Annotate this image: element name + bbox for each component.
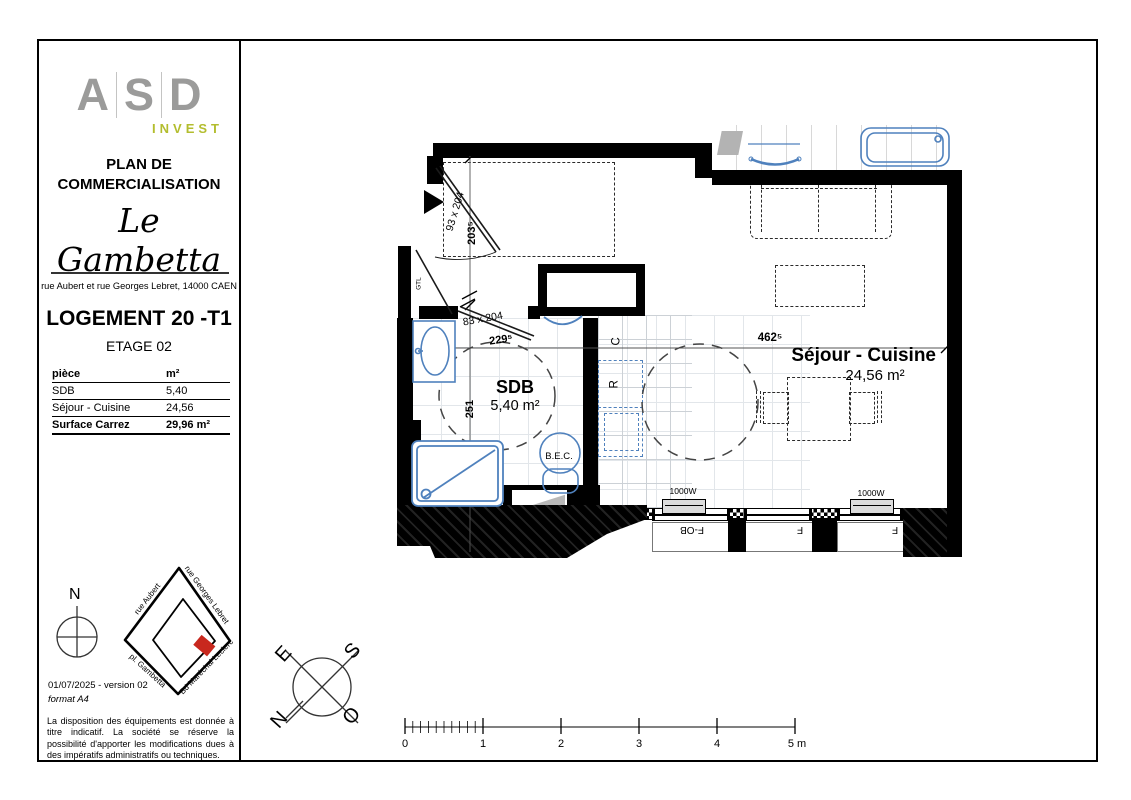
document-title: PLAN DE COMMERCIALISATION <box>39 155 239 194</box>
disclaimer-text: La disposition des équipements est donné… <box>47 716 234 762</box>
sidebar: A S D INVEST PLAN DE COMMERCIALISATION L… <box>39 41 239 758</box>
kitchen-r-label: R <box>609 369 622 399</box>
neighbor-fixture-gray <box>717 131 743 155</box>
wall-left-mid <box>398 246 411 320</box>
kitchen-c-label: C <box>611 326 624 356</box>
entrance-arrow-icon <box>424 190 444 214</box>
chair-right-back <box>877 391 882 423</box>
room-area-sdb: 5,40 m² <box>480 399 550 415</box>
dim-entry-height: 203⁵ <box>466 213 478 253</box>
window-f-middle <box>744 508 812 521</box>
coffee-table-furniture <box>775 265 865 307</box>
version-line: 01/07/2025 - version 02 <box>48 681 148 691</box>
gtl-label: GTL <box>415 267 422 301</box>
radiator-label: 1000W <box>850 489 892 498</box>
dining-table-furniture <box>787 377 851 441</box>
row-piece: Séjour - Cuisine <box>52 402 166 414</box>
areas-table-header: pièce m² <box>52 366 230 383</box>
table-row: Séjour - Cuisine 24,56 <box>52 400 230 417</box>
sofa-center-line <box>818 180 819 232</box>
col-piece: pièce <box>52 368 166 380</box>
wall-top-right <box>712 170 962 185</box>
wall-bath-top-left <box>419 306 458 319</box>
row-piece: SDB <box>52 385 166 397</box>
col-area: m² <box>166 368 230 380</box>
radiator-label: 1000W <box>662 487 704 496</box>
room-area-sejour: 24,56 m² <box>820 368 930 385</box>
sofa-armrest <box>761 180 762 232</box>
wall-step <box>695 143 712 178</box>
scale-tick-4: 4 <box>707 738 727 750</box>
plan-page: A S D INVEST PLAN DE COMMERCIALISATION L… <box>0 0 1131 800</box>
sofa-armrest <box>875 180 876 232</box>
scale-tick-3: 3 <box>629 738 649 750</box>
wall-left-low <box>397 420 421 508</box>
scale-tick-1: 1 <box>473 738 493 750</box>
project-address: rue Aubert et rue Georges Lebret, 14000 … <box>39 281 239 291</box>
wall-pier <box>728 518 746 552</box>
window-label-f: F <box>785 524 815 535</box>
sidebar-divider <box>239 39 241 760</box>
chair-left <box>763 392 789 424</box>
table-total-row: Surface Carrez 29,96 m² <box>52 417 230 435</box>
radiator <box>850 499 894 514</box>
dim-sejour-width: 462⁵ <box>740 332 800 345</box>
total-label: Surface Carrez <box>52 419 166 431</box>
chair-left-back <box>756 391 761 423</box>
wall-entry-stub <box>427 156 443 184</box>
window-label-f-ob: F-OB <box>672 524 712 535</box>
north-letter: N <box>69 586 81 604</box>
logo-letter-s: S <box>124 69 154 121</box>
duct-closet <box>538 264 645 316</box>
room-label-sejour: Séjour - Cuisine <box>790 346 936 367</box>
bec-label: B.E.C. <box>536 452 582 462</box>
sidebar-rule <box>51 272 229 274</box>
project-name: Le Gambetta <box>39 201 239 279</box>
format-line: format A4 <box>48 695 89 705</box>
neighbor-unit-strip <box>712 125 947 170</box>
row-area: 5,40 <box>166 385 230 397</box>
window-label-f: F <box>880 524 910 535</box>
wall-bath-right <box>583 318 598 510</box>
logo-letter-a: A <box>76 69 109 121</box>
room-label-sdb: SDB <box>480 378 550 398</box>
logo-invest-label: INVEST <box>55 121 223 136</box>
radiator <box>662 499 706 514</box>
scale-tick-5m: 5 m <box>782 738 812 750</box>
wall-pier <box>812 518 837 552</box>
unit-title: LOGEMENT 20 -T1 <box>39 307 239 331</box>
scale-tick-0: 0 <box>395 738 415 750</box>
asd-invest-logo: A S D <box>39 69 239 121</box>
chair-right <box>849 392 875 424</box>
kitchen-sink-bowl <box>604 413 639 451</box>
scale-tick-2: 2 <box>551 738 571 750</box>
areas-table: pièce m² SDB 5,40 Séjour - Cuisine 24,56… <box>52 366 230 435</box>
logo-separator <box>161 72 162 118</box>
wall-right <box>947 170 962 557</box>
row-area: 24,56 <box>166 402 230 414</box>
logo-letter-d: D <box>169 69 202 121</box>
sofa-back-line <box>761 188 877 189</box>
logo-separator <box>116 72 117 118</box>
dim-bath-depth: 251 <box>464 389 476 429</box>
wall-top-left <box>433 143 712 158</box>
total-area: 29,96 m² <box>166 419 230 431</box>
floor-label: ETAGE 02 <box>39 338 239 354</box>
table-row: SDB 5,40 <box>52 383 230 400</box>
